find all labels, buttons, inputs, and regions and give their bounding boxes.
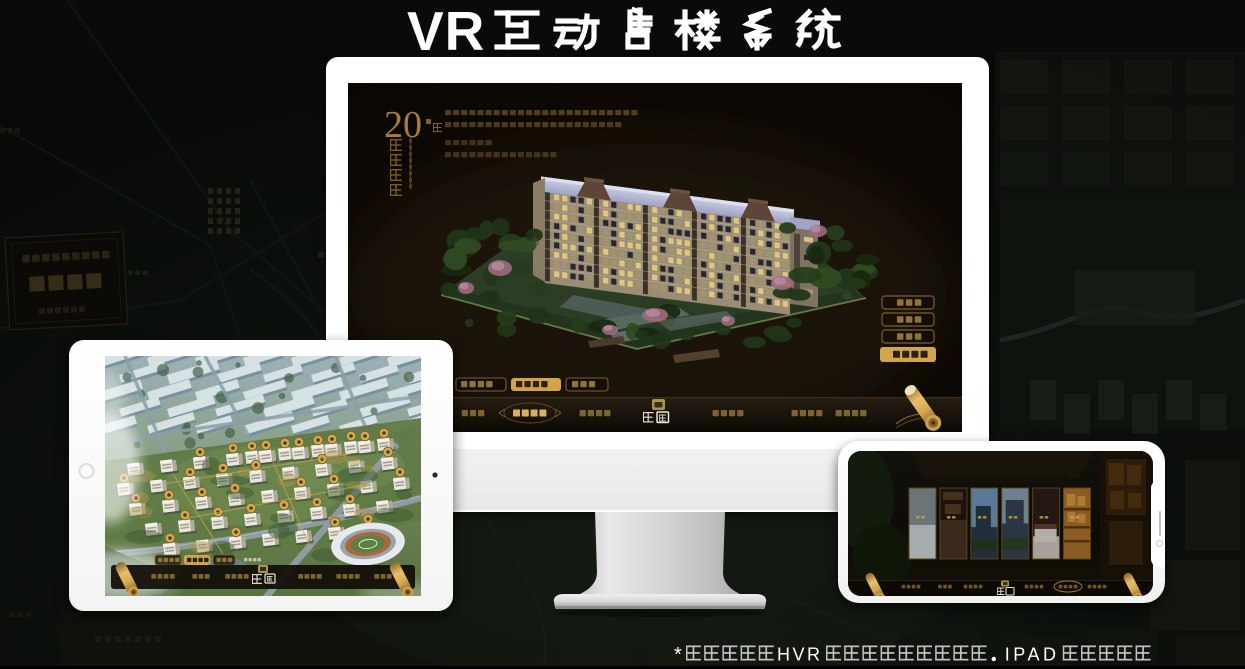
- svg-text:*: *: [674, 644, 682, 666]
- svg-text:20: 20: [384, 104, 422, 146]
- svg-text:VR: VR: [407, 0, 485, 60]
- svg-text:HVR: HVR: [777, 645, 823, 665]
- svg-text:IPAD: IPAD: [1005, 645, 1060, 665]
